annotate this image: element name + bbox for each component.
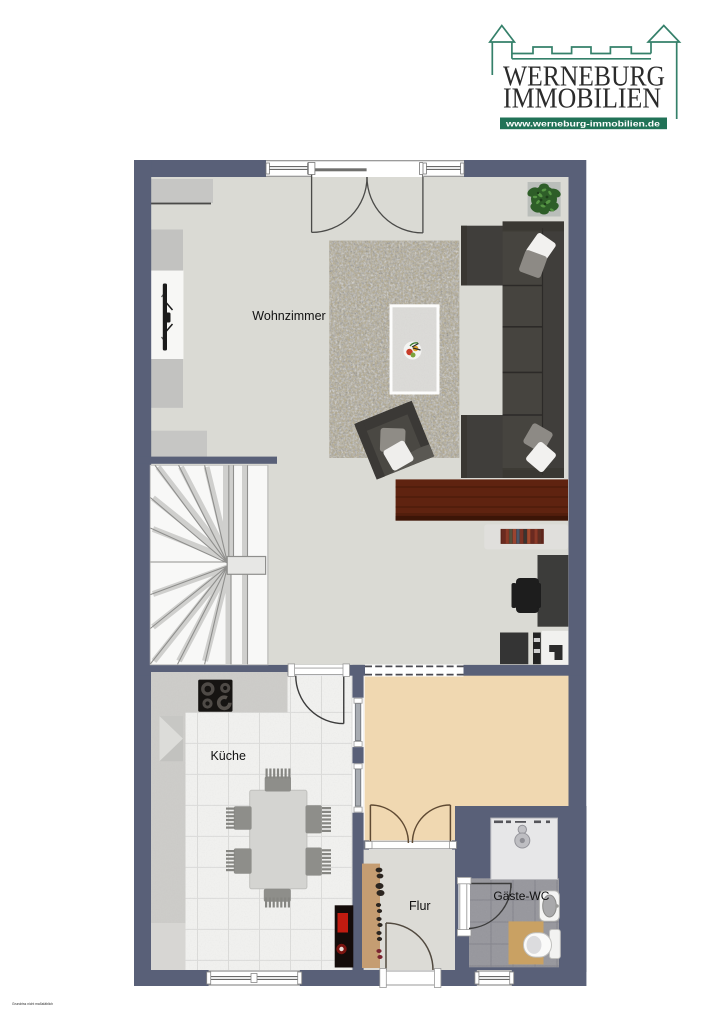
svg-text:Flur: Flur [409,899,431,913]
svg-text:www.werneburg-immobilien.de: www.werneburg-immobilien.de [505,119,661,129]
svg-text:IMMOBILIEN: IMMOBILIEN [503,84,661,115]
svg-text:Wohnzimmer: Wohnzimmer [252,309,325,323]
svg-text:Gäste-WC: Gäste-WC [493,889,549,903]
svg-text:Küche: Küche [210,749,245,763]
svg-text:Grundriss nicht maßstäblich: Grundriss nicht maßstäblich [12,1001,53,1006]
